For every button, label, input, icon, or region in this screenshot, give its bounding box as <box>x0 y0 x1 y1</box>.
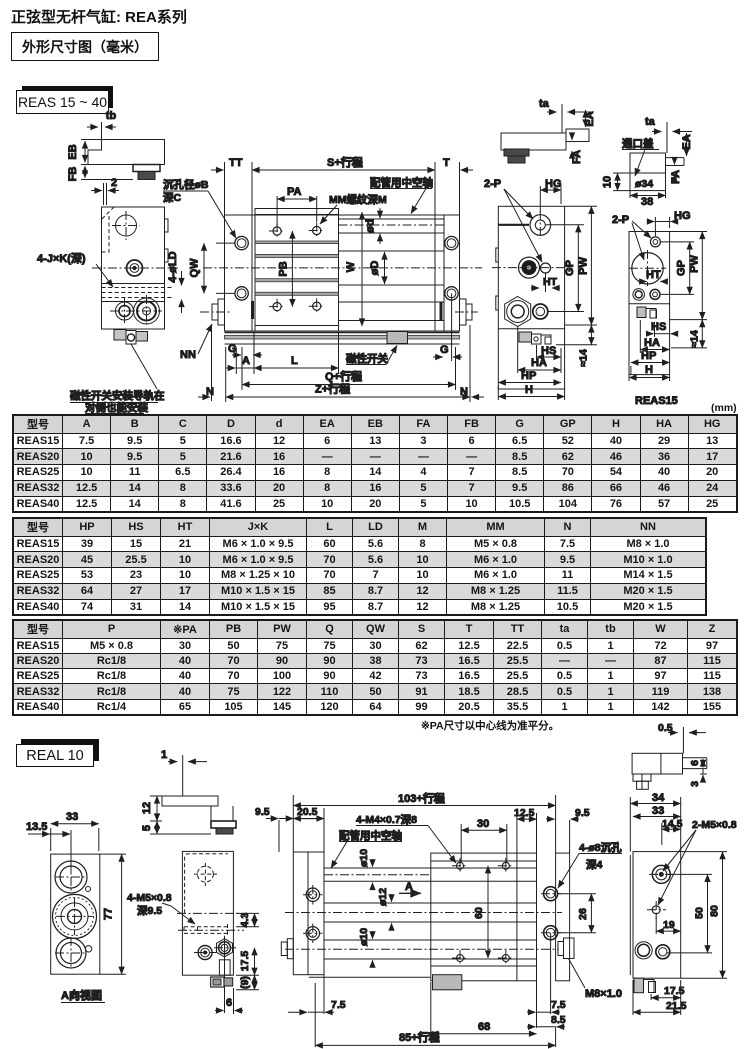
svg-text:配管用中空轴: 配管用中空轴 <box>370 176 433 189</box>
svg-text:33: 33 <box>66 811 78 823</box>
svg-text:深C: 深C <box>163 191 181 204</box>
svg-text:Q+行程: Q+行程 <box>325 369 362 383</box>
svg-text:深9.5: 深9.5 <box>137 904 162 917</box>
svg-text:85+行程: 85+行程 <box>399 1030 440 1044</box>
svg-text:A: A <box>405 881 413 893</box>
svg-text:ø34: ø34 <box>635 178 653 190</box>
svg-text:4-M5×0.8: 4-M5×0.8 <box>127 892 172 904</box>
svg-text:对侧也能安装: 对侧也能安装 <box>85 401 148 414</box>
svg-text:4-M4×0.7深8: 4-M4×0.7深8 <box>356 813 417 826</box>
svg-text:EB: EB <box>67 144 79 159</box>
svg-text:17.5: 17.5 <box>664 985 685 997</box>
svg-text:PW: PW <box>578 257 590 275</box>
svg-text:HP: HP <box>521 370 536 382</box>
svg-text:30: 30 <box>477 818 489 830</box>
svg-text:HS: HS <box>541 345 556 357</box>
svg-text:FA: FA <box>670 170 682 184</box>
svg-text:34: 34 <box>652 792 665 804</box>
svg-text:REAS15: REAS15 <box>635 395 678 407</box>
svg-text:ø10: ø10 <box>358 928 370 946</box>
svg-text:磁性开关: 磁性开关 <box>346 352 388 365</box>
svg-text:ød: ød <box>365 219 377 232</box>
svg-text:S+行程: S+行程 <box>327 155 363 169</box>
svg-text:HT: HT <box>543 276 558 288</box>
svg-text:ø10: ø10 <box>358 849 370 867</box>
svg-text:ø12: ø12 <box>377 888 389 906</box>
svg-text:2-P: 2-P <box>612 214 629 226</box>
svg-text:HG: HG <box>674 210 691 222</box>
svg-text:EA: EA <box>681 134 693 149</box>
svg-text:6: 6 <box>226 997 232 1009</box>
svg-text:≈14: ≈14 <box>578 349 590 367</box>
svg-text:HP: HP <box>641 350 656 362</box>
svg-text:L: L <box>291 355 298 367</box>
svg-text:9.5: 9.5 <box>575 807 590 819</box>
svg-text:øD: øD <box>369 261 381 276</box>
svg-text:6: 6 <box>689 760 701 766</box>
svg-text:3: 3 <box>689 781 701 787</box>
svg-text:7.5: 7.5 <box>331 999 346 1011</box>
svg-text:A: A <box>242 355 250 367</box>
svg-text:ta: ta <box>539 98 550 110</box>
svg-text:7.5: 7.5 <box>551 999 566 1011</box>
svg-text:103+行程: 103+行程 <box>398 791 445 805</box>
svg-text:26: 26 <box>577 908 589 920</box>
svg-text:20.5: 20.5 <box>297 806 318 818</box>
svg-text:H: H <box>525 384 533 396</box>
svg-text:GP: GP <box>676 260 688 276</box>
svg-text:21.5: 21.5 <box>666 1000 687 1012</box>
svg-text:M8×1.0: M8×1.0 <box>585 988 622 1000</box>
svg-text:38: 38 <box>641 196 653 208</box>
svg-text:沉孔径øB: 沉孔径øB <box>163 178 209 191</box>
svg-text:G: G <box>440 344 449 356</box>
svg-text:5: 5 <box>141 825 153 831</box>
svg-text:9.5: 9.5 <box>255 806 270 818</box>
svg-text:13.5: 13.5 <box>26 821 47 833</box>
svg-text:NN: NN <box>180 349 196 361</box>
svg-text:tb: tb <box>106 110 117 122</box>
svg-text:FB: FB <box>67 167 79 182</box>
svg-text:50: 50 <box>694 907 706 919</box>
svg-text:≈14: ≈14 <box>689 330 701 348</box>
svg-text:GP: GP <box>564 260 576 276</box>
svg-text:19: 19 <box>663 919 675 931</box>
svg-text:(9): (9) <box>239 976 251 989</box>
svg-text:4-øLD: 4-øLD <box>167 251 179 282</box>
svg-text:HA: HA <box>644 337 660 349</box>
svg-text:80: 80 <box>709 905 721 917</box>
svg-text:N: N <box>206 386 214 398</box>
svg-text:10: 10 <box>602 176 614 188</box>
svg-text:EA: EA <box>584 111 596 126</box>
svg-text:磁性开关安装导轨在: 磁性开关安装导轨在 <box>70 389 165 402</box>
svg-text:H: H <box>645 364 653 376</box>
svg-text:4-J×K(深): 4-J×K(深) <box>37 251 86 265</box>
svg-text:深4: 深4 <box>586 858 602 871</box>
svg-text:PB: PB <box>278 261 290 276</box>
svg-text:G: G <box>228 343 237 355</box>
svg-text:12: 12 <box>141 802 153 814</box>
svg-text:77: 77 <box>103 908 115 920</box>
svg-text:2-P: 2-P <box>484 178 501 190</box>
svg-text:HG: HG <box>545 178 562 190</box>
svg-text:4.3: 4.3 <box>239 913 251 928</box>
svg-text:A向视图: A向视图 <box>61 988 102 1002</box>
svg-text:TT: TT <box>229 157 243 169</box>
svg-text:N: N <box>460 386 468 398</box>
svg-text:PW: PW <box>689 255 701 273</box>
svg-text:68: 68 <box>478 1021 490 1033</box>
svg-text:8.5: 8.5 <box>551 1014 566 1026</box>
svg-text:FA: FA <box>571 150 583 164</box>
svg-text:2-M5×0.8: 2-M5×0.8 <box>692 819 737 831</box>
svg-text:QW: QW <box>189 258 201 278</box>
svg-text:配管用中空轴: 配管用中空轴 <box>339 829 402 842</box>
svg-text:1: 1 <box>161 749 167 761</box>
svg-text:4-ø8沉孔: 4-ø8沉孔 <box>579 841 622 854</box>
svg-text:60: 60 <box>473 907 485 919</box>
svg-text:通口盖: 通口盖 <box>622 137 654 150</box>
svg-text:T: T <box>443 157 450 169</box>
svg-text:HS: HS <box>651 321 666 333</box>
svg-text:MM螺纹深M: MM螺纹深M <box>329 193 387 206</box>
svg-text:ta: ta <box>645 116 656 128</box>
svg-text:PA: PA <box>287 186 302 198</box>
svg-text:HA: HA <box>531 357 547 369</box>
svg-text:Z+行程: Z+行程 <box>315 382 350 396</box>
svg-text:W: W <box>345 261 357 272</box>
svg-text:33: 33 <box>652 805 664 817</box>
svg-text:14.5: 14.5 <box>662 818 683 830</box>
svg-text:2: 2 <box>111 177 117 189</box>
svg-text:17.5: 17.5 <box>239 951 251 972</box>
svg-text:HT: HT <box>646 269 661 281</box>
